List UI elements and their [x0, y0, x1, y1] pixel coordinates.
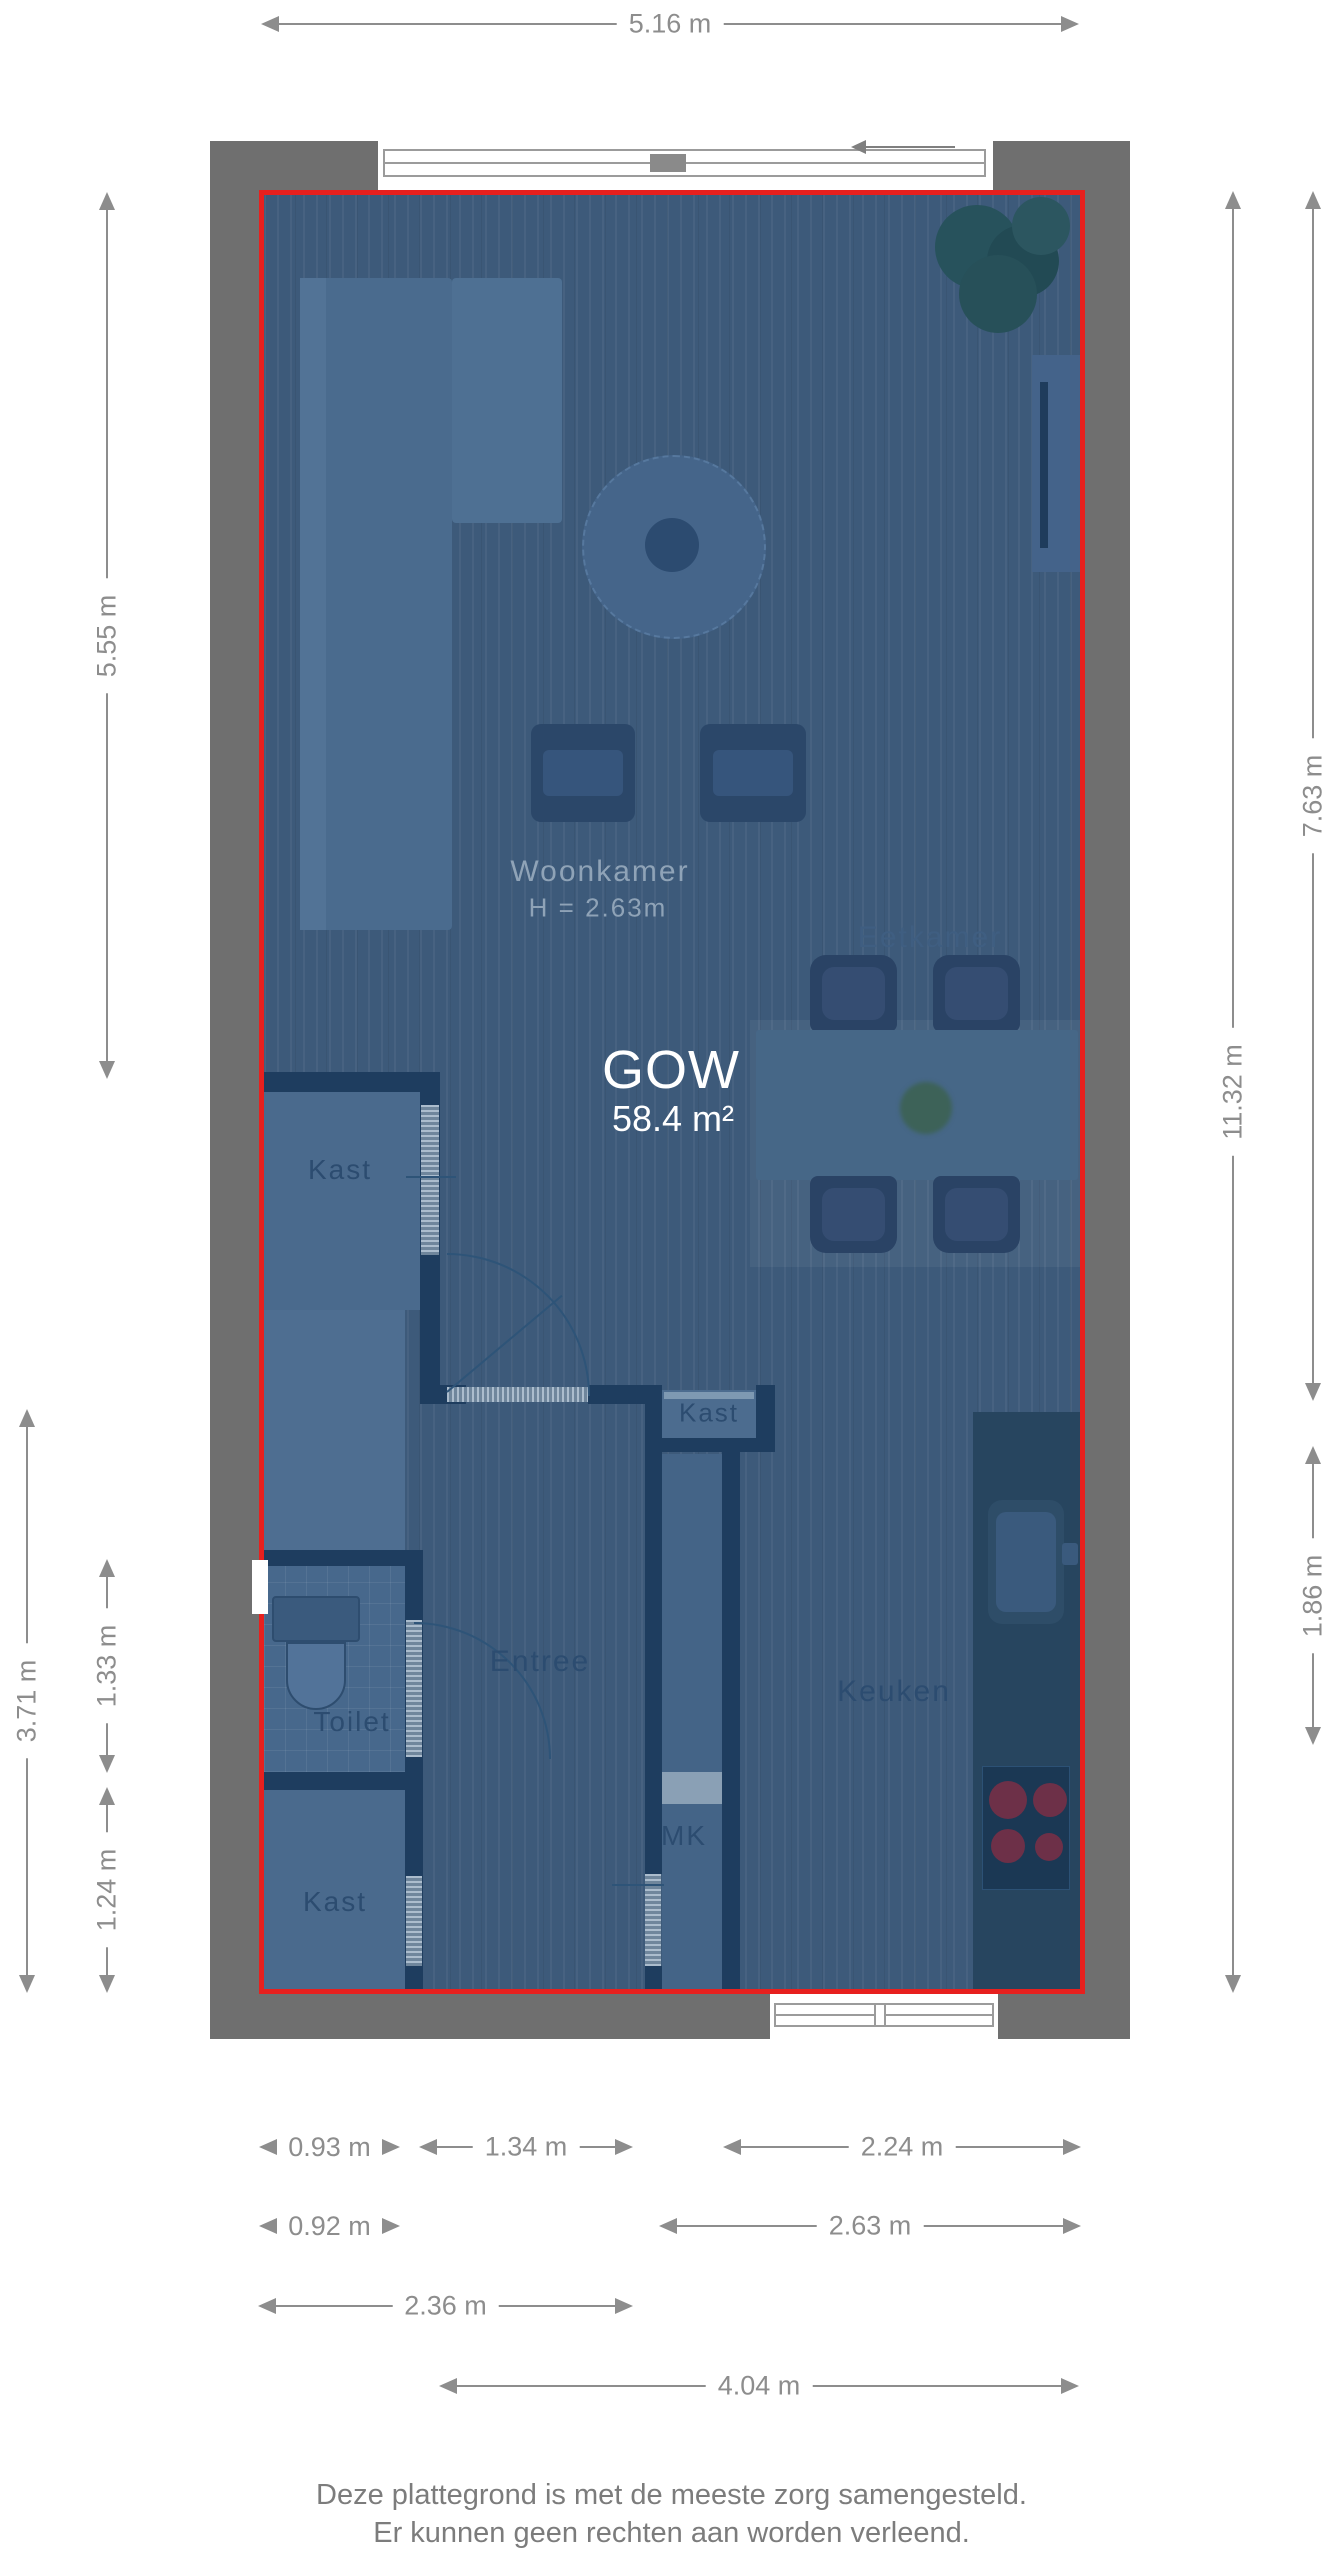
- arrowhead-right-icon: [1063, 2139, 1081, 2155]
- dimension-right-kitchen: 1.86 m: [1299, 1447, 1327, 1744]
- label-meterkast: MK: [661, 1820, 707, 1852]
- dimension-left-closet: 1.24 m: [93, 1788, 121, 1992]
- hall-lobby-floor: [264, 1310, 405, 1552]
- arrowhead-right-icon: [382, 2139, 400, 2155]
- chair-cushion: [822, 967, 885, 1020]
- arrowhead-left-icon: [258, 2298, 276, 2314]
- dimension-value: 3.71 m: [10, 1644, 45, 1759]
- arrowhead-up-icon: [1305, 1446, 1321, 1464]
- side-table: [645, 518, 699, 572]
- arrowhead-left-icon: [419, 2139, 437, 2155]
- armchair-cushion: [713, 750, 793, 796]
- arrowhead-left-icon: [723, 2139, 741, 2155]
- arrowhead-left-icon: [851, 140, 866, 154]
- window-mullion: [874, 2003, 886, 2027]
- dimension-bottom-counter-width: 2.63 m: [660, 2212, 1080, 2240]
- faucet-icon: [1062, 1543, 1078, 1565]
- meter-closet-door: [645, 1874, 661, 1966]
- wall-closet-middle-bottom: [645, 1438, 775, 1452]
- unit-gow-room: Woonkamer H = 2.63m Eetkamer GOW 58.4 m²…: [259, 190, 1085, 1994]
- dining-chair: [933, 1176, 1020, 1253]
- arrowhead-up-icon: [99, 192, 115, 210]
- dimension-value: 1.34 m: [473, 2130, 580, 2165]
- chair-cushion: [945, 967, 1008, 1020]
- label-eetkamer: Eetkamer: [858, 921, 1002, 955]
- label-kast-middle: Kast: [679, 1398, 739, 1429]
- closet-upper-sliding-door: [421, 1105, 439, 1255]
- arrowhead-down-icon: [1305, 1383, 1321, 1401]
- toilet-cistern: [272, 1596, 360, 1642]
- dimension-value: 1.24 m: [90, 1833, 125, 1948]
- dimension-value: 5.55 m: [90, 578, 125, 693]
- toilet-door-swing-arc: [414, 1622, 551, 1759]
- label-toilet: Toilet: [313, 1706, 390, 1738]
- sliding-door-handle: [650, 154, 686, 172]
- sofa-chaise: [452, 278, 562, 523]
- footer-line-2: Er kunnen geen rechten aan worden verlee…: [0, 2514, 1343, 2552]
- closet-upper-floor: [264, 1092, 420, 1310]
- arrowhead-left-icon: [259, 2218, 277, 2234]
- dimension-value: 1.33 m: [90, 1609, 125, 1724]
- arrowhead-left-icon: [439, 2378, 457, 2394]
- label-keuken: Keuken: [837, 1675, 951, 1709]
- burner-icon: [991, 1829, 1025, 1863]
- arrowhead-down-icon: [19, 1975, 35, 1993]
- armchair-cushion: [543, 750, 623, 796]
- burner-icon: [989, 1781, 1027, 1819]
- dimension-right-living: 7.63 m: [1299, 192, 1327, 1400]
- burner-icon: [1033, 1783, 1067, 1817]
- dimension-value: 7.63 m: [1296, 739, 1331, 854]
- floorplan-page: 5.16 m 5.55 m 3.71 m 1.33 m 1.24 m 11.32…: [0, 0, 1343, 2560]
- plant-icon: [1012, 197, 1070, 255]
- slide-direction-left-arrow-icon: [852, 140, 957, 154]
- door-tick-mark: [406, 1176, 456, 1178]
- dimension-value: 0.92 m: [282, 2213, 377, 2240]
- arrowhead-right-icon: [382, 2218, 400, 2234]
- kitchen-sink: [988, 1500, 1064, 1624]
- sofa-backrest: [300, 278, 326, 930]
- shaft-divider-shelf: [662, 1772, 722, 1804]
- wall-closet-upper-top: [264, 1072, 438, 1092]
- dimension-value: 0.93 m: [282, 2134, 377, 2161]
- toilet-bowl: [286, 1642, 346, 1710]
- wall-shaft-left-lower: [645, 1966, 662, 1989]
- arrowhead-down-icon: [1305, 1727, 1321, 1745]
- closet-lower-door: [406, 1876, 422, 1966]
- label-ceiling-height: H = 2.63m: [529, 893, 668, 924]
- arrowhead-down-icon: [99, 1755, 115, 1773]
- dimension-value: 11.32 m: [1216, 1028, 1251, 1156]
- wall-shaft-left: [645, 1452, 662, 1874]
- arrowhead-right-icon: [615, 2139, 633, 2155]
- label-kast-lower: Kast: [303, 1886, 367, 1918]
- dimension-left-living: 5.55 m: [93, 193, 121, 1078]
- dining-chair: [933, 955, 1020, 1032]
- dimension-right-total: 11.32 m: [1219, 192, 1247, 1992]
- footer-disclaimer: Deze plattegrond is met de meeste zorg s…: [0, 2476, 1343, 2552]
- dimension-value: 1.86 m: [1296, 1538, 1331, 1653]
- arrowhead-down-icon: [1225, 1975, 1241, 1993]
- dining-chair: [810, 1176, 897, 1253]
- chair-cushion: [822, 1188, 885, 1241]
- dimension-left-lower-zone: 3.71 m: [13, 1410, 41, 1992]
- dimension-bottom-kitchen-width: 2.24 m: [724, 2133, 1080, 2161]
- label-woonkamer: Woonkamer: [510, 855, 689, 889]
- table-decoration: [900, 1082, 952, 1134]
- chair-cushion: [945, 1188, 1008, 1241]
- label-gow-area: 58.4 m²: [612, 1098, 734, 1140]
- arrowhead-down-icon: [99, 1061, 115, 1079]
- kitchen-counter: [973, 1412, 1080, 1989]
- plant-icon: [959, 255, 1037, 333]
- dimension-value: 2.24 m: [849, 2130, 956, 2165]
- dimension-left-toilet: 1.33 m: [93, 1560, 121, 1772]
- door-tick-mark: [612, 1884, 664, 1886]
- arrowhead-up-icon: [1305, 191, 1321, 209]
- cooktop: [982, 1766, 1070, 1890]
- armchair-right: [700, 724, 806, 822]
- arrowhead-up-icon: [99, 1787, 115, 1805]
- shaft-floor: [662, 1454, 722, 1772]
- arrowhead-left-icon: [259, 2139, 277, 2155]
- arrowhead-right-icon: [615, 2298, 633, 2314]
- burner-icon: [1035, 1833, 1063, 1861]
- label-gow: GOW: [602, 1039, 740, 1101]
- arrowhead-up-icon: [1225, 191, 1241, 209]
- dimension-value: 5.16 m: [617, 7, 724, 42]
- dimension-bottom-closet-width: 0.92 m: [259, 2212, 400, 2240]
- wall-shaft-right: [722, 1452, 740, 1989]
- arrowhead-down-icon: [99, 1975, 115, 1993]
- toilet-wall-niche: [252, 1560, 268, 1614]
- dimension-bottom-toilet-width: 0.93 m: [259, 2133, 400, 2161]
- sink-basin: [996, 1512, 1056, 1612]
- dining-table: [756, 1030, 1078, 1180]
- dimension-value: 2.63 m: [817, 2209, 924, 2244]
- arrowhead-up-icon: [19, 1409, 35, 1427]
- dimension-bottom-hall-width: 2.36 m: [259, 2292, 632, 2320]
- arrowhead-up-icon: [99, 1559, 115, 1577]
- tv: [1040, 382, 1048, 548]
- dimension-bottom-keuken-total: 4.04 m: [440, 2372, 1078, 2400]
- dimension-top-width: 5.16 m: [262, 10, 1078, 38]
- arrowhead-left-icon: [261, 16, 279, 32]
- wall-toilet-bottom: [264, 1772, 423, 1790]
- arrowhead-left-icon: [659, 2218, 677, 2234]
- wall-toilet-top: [264, 1550, 423, 1566]
- label-entree: Entree: [490, 1645, 590, 1679]
- dining-chair: [810, 955, 897, 1032]
- label-kast-upper: Kast: [308, 1154, 372, 1186]
- arrowhead-right-icon: [1061, 2378, 1079, 2394]
- dimension-bottom-entree-width: 1.34 m: [420, 2133, 632, 2161]
- footer-line-1: Deze plattegrond is met de meeste zorg s…: [0, 2476, 1343, 2514]
- arrowhead-right-icon: [1061, 16, 1079, 32]
- dimension-value: 4.04 m: [706, 2369, 813, 2404]
- window-opening: [770, 1994, 998, 2040]
- dimension-value: 2.36 m: [392, 2289, 499, 2324]
- arrowhead-right-icon: [1063, 2218, 1081, 2234]
- armchair-left: [531, 724, 635, 822]
